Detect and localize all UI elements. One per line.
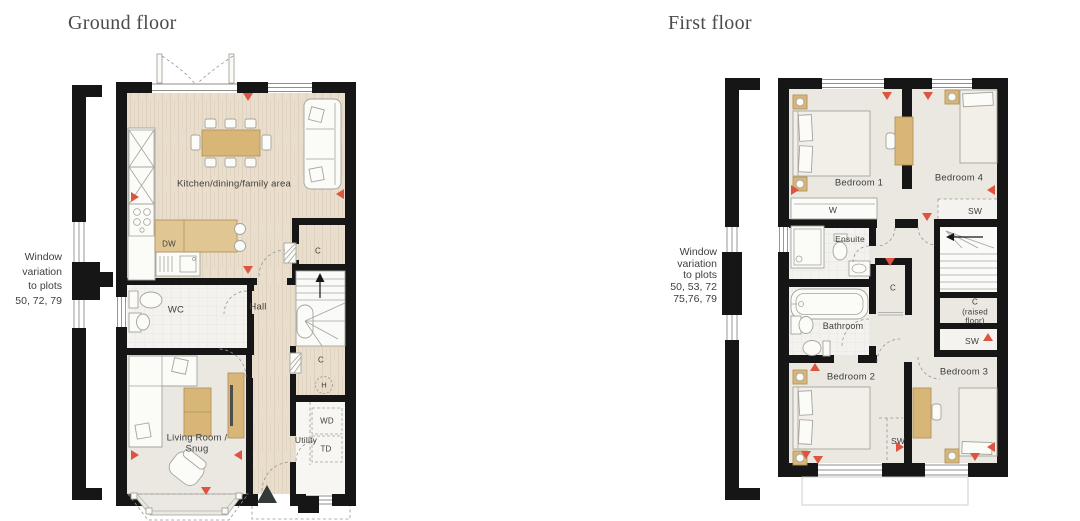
gf-kitchen-sofa bbox=[304, 99, 341, 189]
toilet bbox=[140, 292, 162, 308]
label-bathroom: Bathroom bbox=[823, 321, 864, 331]
gf-dining-table bbox=[202, 130, 260, 156]
first-floor-title: First floor bbox=[668, 12, 752, 35]
gf-bay-window bbox=[128, 493, 248, 520]
desk-chair bbox=[932, 404, 941, 420]
entrance-post bbox=[298, 496, 319, 513]
ff-below-roof-outline bbox=[802, 477, 968, 505]
basin bbox=[137, 314, 150, 330]
label-cupboard-upper: C bbox=[315, 247, 321, 256]
first-floor-plan bbox=[722, 78, 1008, 505]
label-cupboard-mid: C bbox=[890, 284, 896, 293]
floorplans-page: Ground floor First floor Window variatio… bbox=[0, 0, 1080, 521]
shower bbox=[791, 226, 824, 268]
label-wd: WD bbox=[320, 417, 334, 426]
label-sw-right: SW bbox=[965, 336, 979, 346]
gf-variation-wall bbox=[72, 85, 113, 500]
label-kitchen: Kitchen/dining/family area bbox=[177, 179, 291, 190]
gf-stairs bbox=[296, 271, 345, 346]
desk bbox=[895, 117, 913, 165]
label-bedroom2: Bedroom 2 bbox=[827, 372, 875, 383]
gf-french-door-leaf bbox=[157, 54, 162, 83]
desk bbox=[913, 388, 931, 438]
label-td: TD bbox=[320, 445, 331, 454]
ground-floor-title: Ground floor bbox=[68, 12, 177, 35]
toilet-cistern bbox=[823, 341, 830, 356]
label-cupboard-raised: C (raised floor) bbox=[958, 298, 992, 327]
label-dw: DW bbox=[162, 240, 176, 249]
label-bedroom3: Bedroom 3 bbox=[940, 367, 988, 378]
tv bbox=[230, 385, 233, 426]
label-living-room: Living Room / Snug bbox=[160, 433, 234, 456]
label-wardrobe: W bbox=[829, 205, 837, 215]
gf-stool bbox=[235, 241, 246, 252]
toilet bbox=[833, 242, 847, 260]
label-wc: WC bbox=[168, 305, 184, 316]
label-bedroom1: Bedroom 1 bbox=[835, 178, 883, 189]
label-heater: H bbox=[321, 381, 327, 390]
gf-french-door-leaf bbox=[229, 54, 234, 83]
label-utility: Utility bbox=[295, 435, 317, 445]
gf-window-variation-note: Window variation to plots 50, 72, 79 bbox=[0, 250, 62, 308]
label-ensuite: Ensuite bbox=[835, 234, 865, 244]
label-sw-mid: SW bbox=[891, 436, 905, 446]
basin bbox=[799, 317, 813, 334]
toilet bbox=[803, 341, 821, 356]
label-bedroom4: Bedroom 4 bbox=[935, 173, 983, 184]
gf-stool bbox=[235, 224, 246, 235]
toilet-cistern bbox=[129, 291, 138, 308]
label-cupboard-lower: C bbox=[318, 356, 324, 365]
label-sw-bedroom4: SW bbox=[968, 206, 982, 216]
ff-variation-wall bbox=[722, 78, 760, 500]
ff-window-variation-note: Window variation to plots 50, 53, 72 75,… bbox=[617, 247, 717, 306]
label-hall: Hall bbox=[249, 302, 266, 313]
desk-chair bbox=[886, 133, 895, 149]
